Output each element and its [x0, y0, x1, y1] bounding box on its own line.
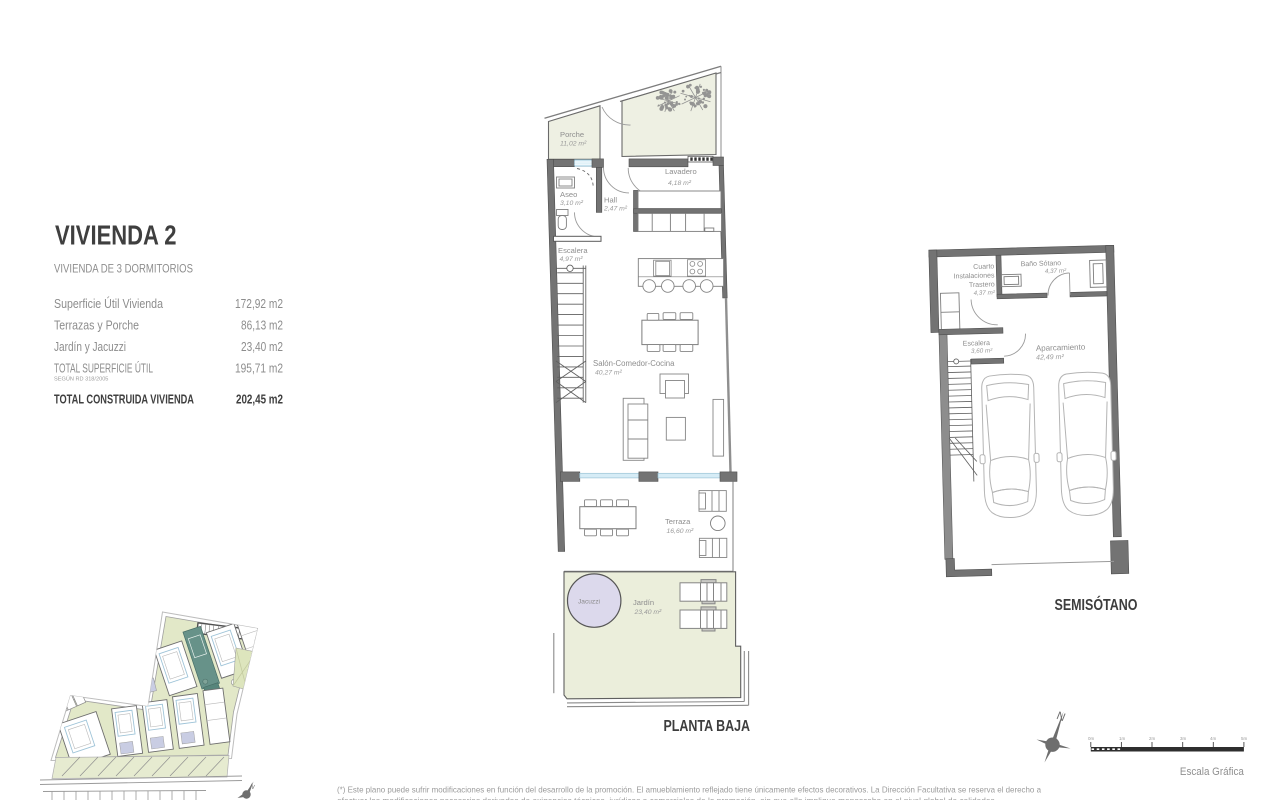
svg-text:11,02 m²: 11,02 m² [560, 141, 587, 148]
svg-text:23,40 m²: 23,40 m² [634, 609, 663, 616]
svg-text:Salón-Comedor-Cocina: Salón-Comedor-Cocina [593, 359, 675, 368]
svg-text:23,40 m2: 23,40 m2 [241, 339, 283, 354]
svg-text:(*) Este plano puede sufrir mo: (*) Este plano puede sufrir modificacion… [337, 785, 1041, 795]
svg-text:2m: 2m [1149, 736, 1156, 741]
svg-text:3m: 3m [1180, 736, 1187, 741]
svg-text:4,97 m²: 4,97 m² [560, 256, 584, 263]
svg-text:Terraza: Terraza [665, 517, 691, 526]
svg-text:3,60 m²: 3,60 m² [971, 347, 993, 355]
svg-text:16,60 m²: 16,60 m² [667, 528, 695, 535]
svg-text:PLANTA BAJA: PLANTA BAJA [664, 718, 751, 735]
svg-text:Terrazas y Porche: Terrazas y Porche [54, 318, 139, 333]
svg-text:Hall: Hall [604, 196, 617, 205]
svg-text:4,37 m²: 4,37 m² [1045, 267, 1067, 275]
svg-text:202,45 m2: 202,45 m2 [236, 392, 283, 407]
svg-text:TOTAL CONSTRUIDA VIVIENDA: TOTAL CONSTRUIDA VIVIENDA [54, 392, 194, 407]
svg-text:1m: 1m [1119, 736, 1126, 741]
svg-text:Porche: Porche [560, 130, 584, 139]
svg-text:195,71 m2: 195,71 m2 [235, 361, 283, 376]
svg-text:Jardín: Jardín [633, 598, 654, 607]
svg-text:40,27 m²: 40,27 m² [595, 369, 623, 376]
svg-text:2,47 m²: 2,47 m² [603, 205, 628, 212]
svg-text:86,13 m2: 86,13 m2 [241, 318, 283, 333]
svg-text:42,49 m²: 42,49 m² [1036, 354, 1064, 362]
svg-text:TOTAL SUPERFICIE ÚTIL: TOTAL SUPERFICIE ÚTIL [54, 361, 153, 376]
svg-text:Instalaciones: Instalaciones [954, 272, 996, 280]
svg-text:VIVIENDA 2: VIVIENDA 2 [55, 220, 177, 251]
svg-text:4,18 m²: 4,18 m² [668, 180, 692, 187]
svg-text:0m: 0m [1088, 736, 1095, 741]
svg-text:Escalera: Escalera [558, 246, 588, 255]
svg-text:Escala Gráfica: Escala Gráfica [1180, 766, 1245, 778]
svg-text:efectuar las modificaciones ne: efectuar las modificaciones necesarias d… [337, 796, 997, 800]
svg-text:5m: 5m [1241, 736, 1248, 741]
svg-text:Superficie Útil Vivienda: Superficie Útil Vivienda [54, 296, 164, 311]
svg-text:Jacuzzi: Jacuzzi [578, 599, 601, 606]
svg-text:Jardín y Jacuzzi: Jardín y Jacuzzi [54, 339, 126, 354]
svg-text:VIVIENDA DE 3 DORMITORIOS: VIVIENDA DE 3 DORMITORIOS [54, 262, 193, 276]
svg-text:4,37 m²: 4,37 m² [973, 289, 995, 297]
svg-text:SEGÚN RD 318/2005: SEGÚN RD 318/2005 [54, 376, 108, 383]
svg-text:Aseo: Aseo [560, 190, 577, 199]
svg-text:4m: 4m [1210, 736, 1217, 741]
svg-text:3,10 m²: 3,10 m² [560, 200, 584, 207]
svg-text:Aparcamiento: Aparcamiento [1036, 343, 1086, 353]
svg-text:172,92 m2: 172,92 m2 [235, 296, 283, 311]
svg-text:Cuarto: Cuarto [973, 263, 994, 271]
svg-text:Escalera: Escalera [963, 340, 991, 348]
svg-text:Lavadero: Lavadero [665, 167, 697, 176]
svg-text:Trastero: Trastero [969, 281, 995, 289]
svg-text:SEMISÓTANO: SEMISÓTANO [1055, 596, 1138, 614]
